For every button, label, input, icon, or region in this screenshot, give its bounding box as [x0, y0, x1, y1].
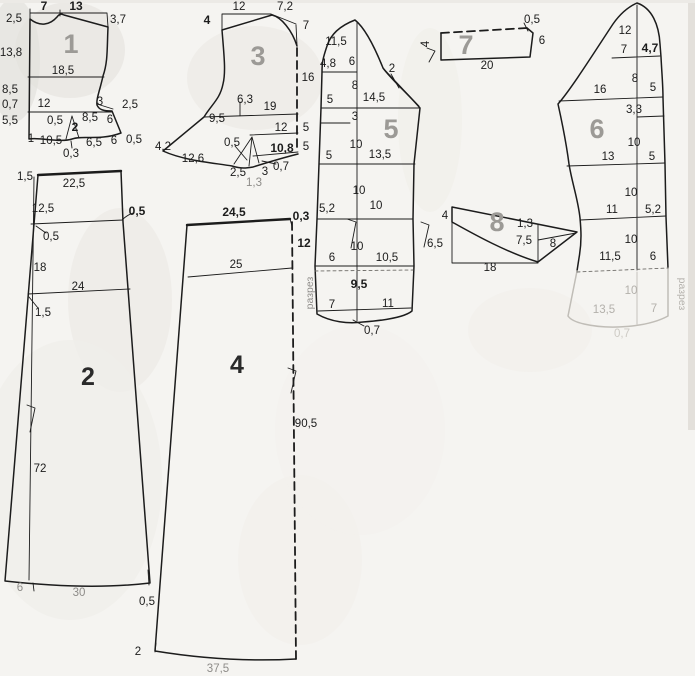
piece-2-top-edge: [38, 171, 121, 175]
measurement-label: 13: [69, 0, 83, 13]
measurement-label: 12: [38, 98, 51, 110]
measurement-label: 12: [275, 122, 288, 134]
measurement-label: 6: [539, 35, 545, 47]
measurement-label: 12,6: [182, 153, 204, 165]
measurement-label: 5,2: [645, 204, 661, 216]
measurement-label: 8: [632, 73, 638, 85]
measurement-label: 30: [73, 587, 86, 599]
measurement-label: 0,5: [524, 14, 540, 26]
measurement-label: 9,5: [351, 277, 368, 291]
measurement-label: 72: [34, 463, 47, 475]
measurement-label: 7: [621, 44, 627, 56]
measurement-label: 9,5: [209, 113, 225, 125]
piece-2-number: 2: [81, 363, 95, 391]
measurement-label: 24,5: [222, 205, 246, 219]
measurement-label: 0,5: [126, 134, 142, 146]
measurement-label: 10: [628, 137, 641, 149]
measurement-label: 5: [303, 122, 309, 134]
measurement-label: 3,3: [626, 104, 642, 116]
measurement-label: 6: [17, 582, 23, 594]
measurement-label: 19: [264, 101, 277, 113]
measurement-label: 3: [352, 111, 358, 123]
cut-mark-label: разрез: [676, 278, 688, 311]
measurement-label: 6: [111, 135, 117, 147]
measurement-label: 5,2: [319, 203, 335, 215]
measurement-label: 6,5: [86, 137, 102, 149]
measurement-label: 8: [352, 80, 358, 92]
measurement-label: 11,5: [325, 36, 347, 48]
measurement-label: 5: [650, 82, 656, 94]
measurement-label: 7: [303, 20, 309, 32]
piece-8-outline: [452, 207, 577, 262]
measurement-label: 18: [484, 262, 497, 274]
measurement-label: 6,5: [427, 238, 443, 250]
measurement-label: 0,5: [129, 204, 146, 218]
measurement-label: 7: [651, 303, 657, 315]
measurement-label: 10: [370, 200, 383, 212]
measurement-label: 10: [625, 285, 638, 297]
measurement-label: 0,7: [2, 99, 18, 111]
measurement-label: 3,7: [110, 14, 126, 26]
measurement-label: 5: [649, 151, 655, 163]
piece-5-number: 5: [383, 114, 398, 144]
measurement-label: 11: [606, 204, 618, 216]
measurement-label: 24: [72, 281, 85, 293]
measurement-label: 0,3: [63, 148, 79, 160]
pattern-drawing: 17132,53,713,818,58,50,71232,55,50,58,56…: [0, 0, 695, 676]
measurement-label: 12: [233, 1, 246, 13]
measurement-label: 5: [327, 94, 333, 106]
measurement-label: 5,5: [2, 115, 18, 127]
measurement-label: 4: [442, 210, 449, 222]
measurement-label: 0,5: [43, 231, 59, 243]
measurement-label: 4,7: [642, 41, 659, 55]
measurement-label: 7: [41, 0, 48, 13]
measurement-label: 12: [297, 236, 311, 250]
measurement-label: 7,5: [516, 235, 532, 247]
measurement-label: 0,7: [614, 328, 630, 340]
measurement-label: 18: [34, 262, 47, 274]
measurement-label: 14,5: [363, 92, 385, 104]
measurement-label: 0,5: [224, 137, 240, 149]
measurement-label: 13,8: [0, 47, 22, 59]
measurement-label: 2: [389, 63, 395, 75]
measurement-label: 10: [625, 234, 638, 246]
measurement-label: 10,5: [40, 135, 62, 147]
measurement-label: 2: [135, 646, 141, 658]
piece-4-top-edge: [187, 219, 290, 225]
measurement-label: 13,5: [369, 149, 391, 161]
measurement-label: 6: [107, 114, 113, 126]
measurement-label: 10: [350, 139, 363, 151]
measurement-label: 16: [302, 72, 315, 84]
measurement-label: 13: [602, 151, 615, 163]
measurement-label: 12,5: [32, 203, 54, 215]
measurement-label: 4: [204, 13, 211, 27]
measurement-label: 7: [329, 299, 335, 311]
piece-4-number: 4: [230, 351, 244, 379]
measurement-label: 7,2: [277, 1, 293, 13]
measurement-label: 8: [550, 238, 556, 250]
measurement-label: 25: [230, 259, 243, 271]
piece-3-number: 3: [250, 41, 265, 71]
measurement-label: 11: [382, 298, 394, 310]
measurement-label: 12: [619, 25, 632, 37]
measurement-label: 20: [481, 60, 494, 72]
measurement-label: 0,7: [273, 161, 289, 173]
measurement-label: 2: [72, 120, 79, 134]
measurement-label: 0,3: [293, 209, 310, 223]
measurement-label: 1: [28, 133, 34, 145]
measurement-label: 0,5: [139, 596, 155, 608]
measurement-label: 3: [97, 96, 103, 108]
cut-mark-label: разрез: [304, 276, 316, 309]
measurement-label: 4,2: [155, 141, 171, 153]
measurement-label: 37,5: [207, 663, 229, 675]
measurement-label: 0,7: [364, 325, 380, 337]
measurement-label: 4: [420, 40, 432, 47]
piece-1-number: 1: [63, 29, 78, 59]
piece-5-hem-fold-line: [315, 270, 413, 271]
measurement-label: 5: [303, 141, 309, 153]
measurement-label: 10,5: [376, 252, 398, 264]
measurement-label: 10: [353, 185, 366, 197]
measurement-label: 6: [650, 251, 656, 263]
measurement-label: 10: [351, 241, 364, 253]
measurement-label: 1,3: [246, 177, 262, 189]
measurement-label: 1,5: [35, 307, 51, 319]
measurement-label: 2,5: [230, 167, 246, 179]
measurement-label: 2,5: [122, 99, 138, 111]
measurement-label: 18,5: [52, 65, 74, 77]
piece-8-number: 8: [489, 207, 504, 237]
piece-6-hem-fold-line: [577, 268, 668, 272]
measurement-label: 5: [326, 150, 332, 162]
measurement-label: 6: [329, 252, 335, 264]
measurement-label: 10,8: [270, 141, 294, 155]
piece-6-number: 6: [589, 114, 604, 144]
measurement-label: 90,5: [295, 418, 317, 430]
measurement-label: 3: [262, 166, 268, 178]
measurement-label: 22,5: [63, 178, 85, 190]
piece-7-number: 7: [458, 30, 473, 60]
measurement-label: 11,5: [599, 251, 621, 263]
measurement-label: 6,3: [237, 94, 253, 106]
measurement-label: 1,5: [17, 171, 33, 183]
measurement-label: 2,5: [6, 13, 22, 25]
measurement-label: 1,3: [517, 218, 533, 230]
measurement-label: 0,5: [47, 115, 63, 127]
measurement-label: 10: [625, 187, 638, 199]
measurement-label: 16: [594, 84, 607, 96]
piece-7-fold-line: [441, 28, 527, 33]
measurement-label: 8,5: [2, 84, 18, 96]
measurement-label: 8,5: [82, 112, 98, 124]
measurement-label: 4,8: [320, 58, 336, 70]
pattern-sheet: 17132,53,713,818,58,50,71232,55,50,58,56…: [0, 0, 695, 676]
measurement-label: 13,5: [593, 304, 615, 316]
measurement-label: 6: [349, 56, 355, 68]
